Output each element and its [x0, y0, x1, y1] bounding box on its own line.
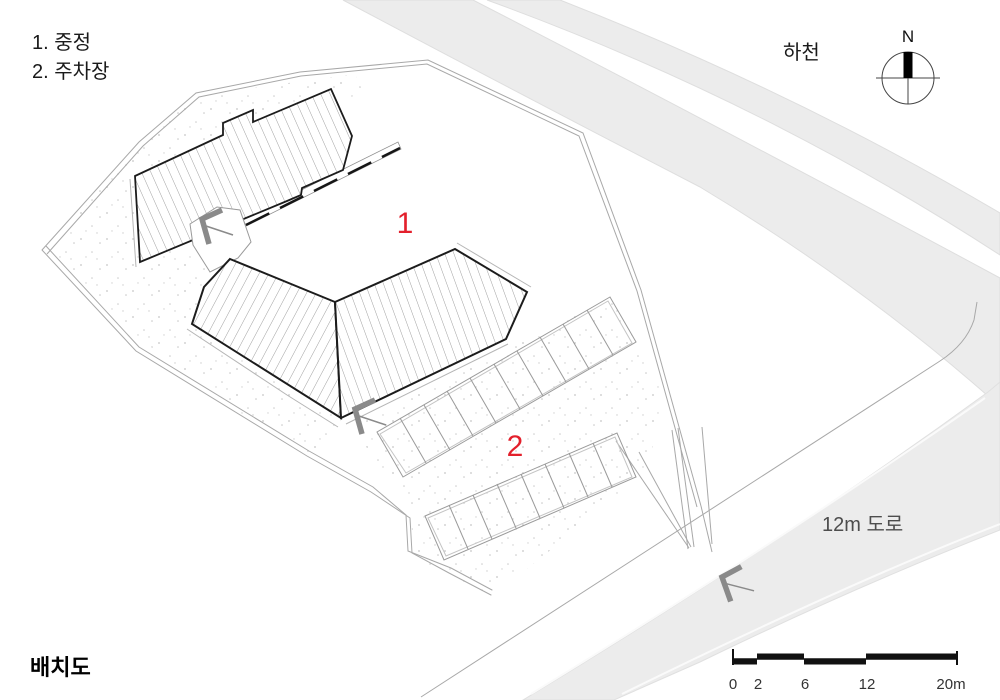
- scale-tick-2: 2: [754, 676, 762, 693]
- courtyard-number-label: 1: [397, 207, 414, 240]
- scale-tick-20m: 20m: [936, 676, 965, 693]
- road-label: 12m 도로: [822, 514, 903, 536]
- site-plan-drawing: 1 2 N 1. 중정 2. 주차장 하천 12m 도로 배치도 0 2 6 1…: [0, 0, 1000, 700]
- north-label: N: [902, 27, 914, 46]
- scale-bar: 0 2 6 12 20m: [729, 649, 966, 693]
- north-arrow-icon: N: [876, 27, 940, 104]
- stream-band-upper: [487, 0, 1000, 255]
- legend-item-1: 1. 중정: [32, 31, 91, 54]
- scale-tick-12: 12: [859, 676, 876, 693]
- stream-label: 하천: [783, 41, 820, 64]
- scale-tick-6: 6: [801, 676, 809, 693]
- scale-tick-0: 0: [729, 676, 737, 693]
- legend-item-2: 2. 주차장: [32, 60, 109, 83]
- drawing-title: 배치도: [30, 655, 91, 680]
- parking-number-label: 2: [507, 430, 524, 463]
